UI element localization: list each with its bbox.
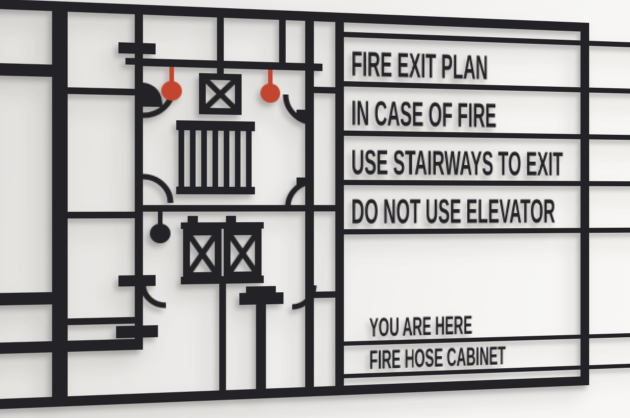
message-text: USE STAIRWAYS TO EXIT: [351, 148, 563, 181]
plan-walls: [0, 9, 335, 400]
photo-of-fire-exit-sign: { "colors":{ "sign_black":"#232226", "ac…: [0, 0, 630, 418]
message-row: IN CASE OF FIRE: [344, 86, 630, 141]
stairway-stripes-icon: [176, 120, 255, 194]
panel-gap: [344, 232, 630, 313]
fire-exit-plan-sign: FIRE EXIT PLAN IN CASE OF FIRE USE STAIR…: [0, 0, 589, 410]
message-text: IN CASE OF FIRE: [351, 98, 496, 133]
fire-hose-pin: [349, 357, 363, 386]
message-text: FIRE EXIT PLAN: [351, 49, 488, 85]
floor-plan: [0, 9, 335, 400]
message-row: USE STAIRWAYS TO EXIT: [344, 136, 630, 187]
message-row: DO NOT USE ELEVATOR: [344, 185, 630, 234]
legend-label: FIRE HOSE CABINET: [369, 345, 505, 373]
message-text: DO NOT USE ELEVATOR: [351, 197, 555, 229]
message-panel: FIRE EXIT PLAN IN CASE OF FIRE USE STAIR…: [344, 22, 630, 385]
legend-label: YOU ARE HERE: [369, 314, 472, 341]
you-are-here-pin: [150, 212, 171, 244]
plan-text-divider: [335, 22, 344, 386]
